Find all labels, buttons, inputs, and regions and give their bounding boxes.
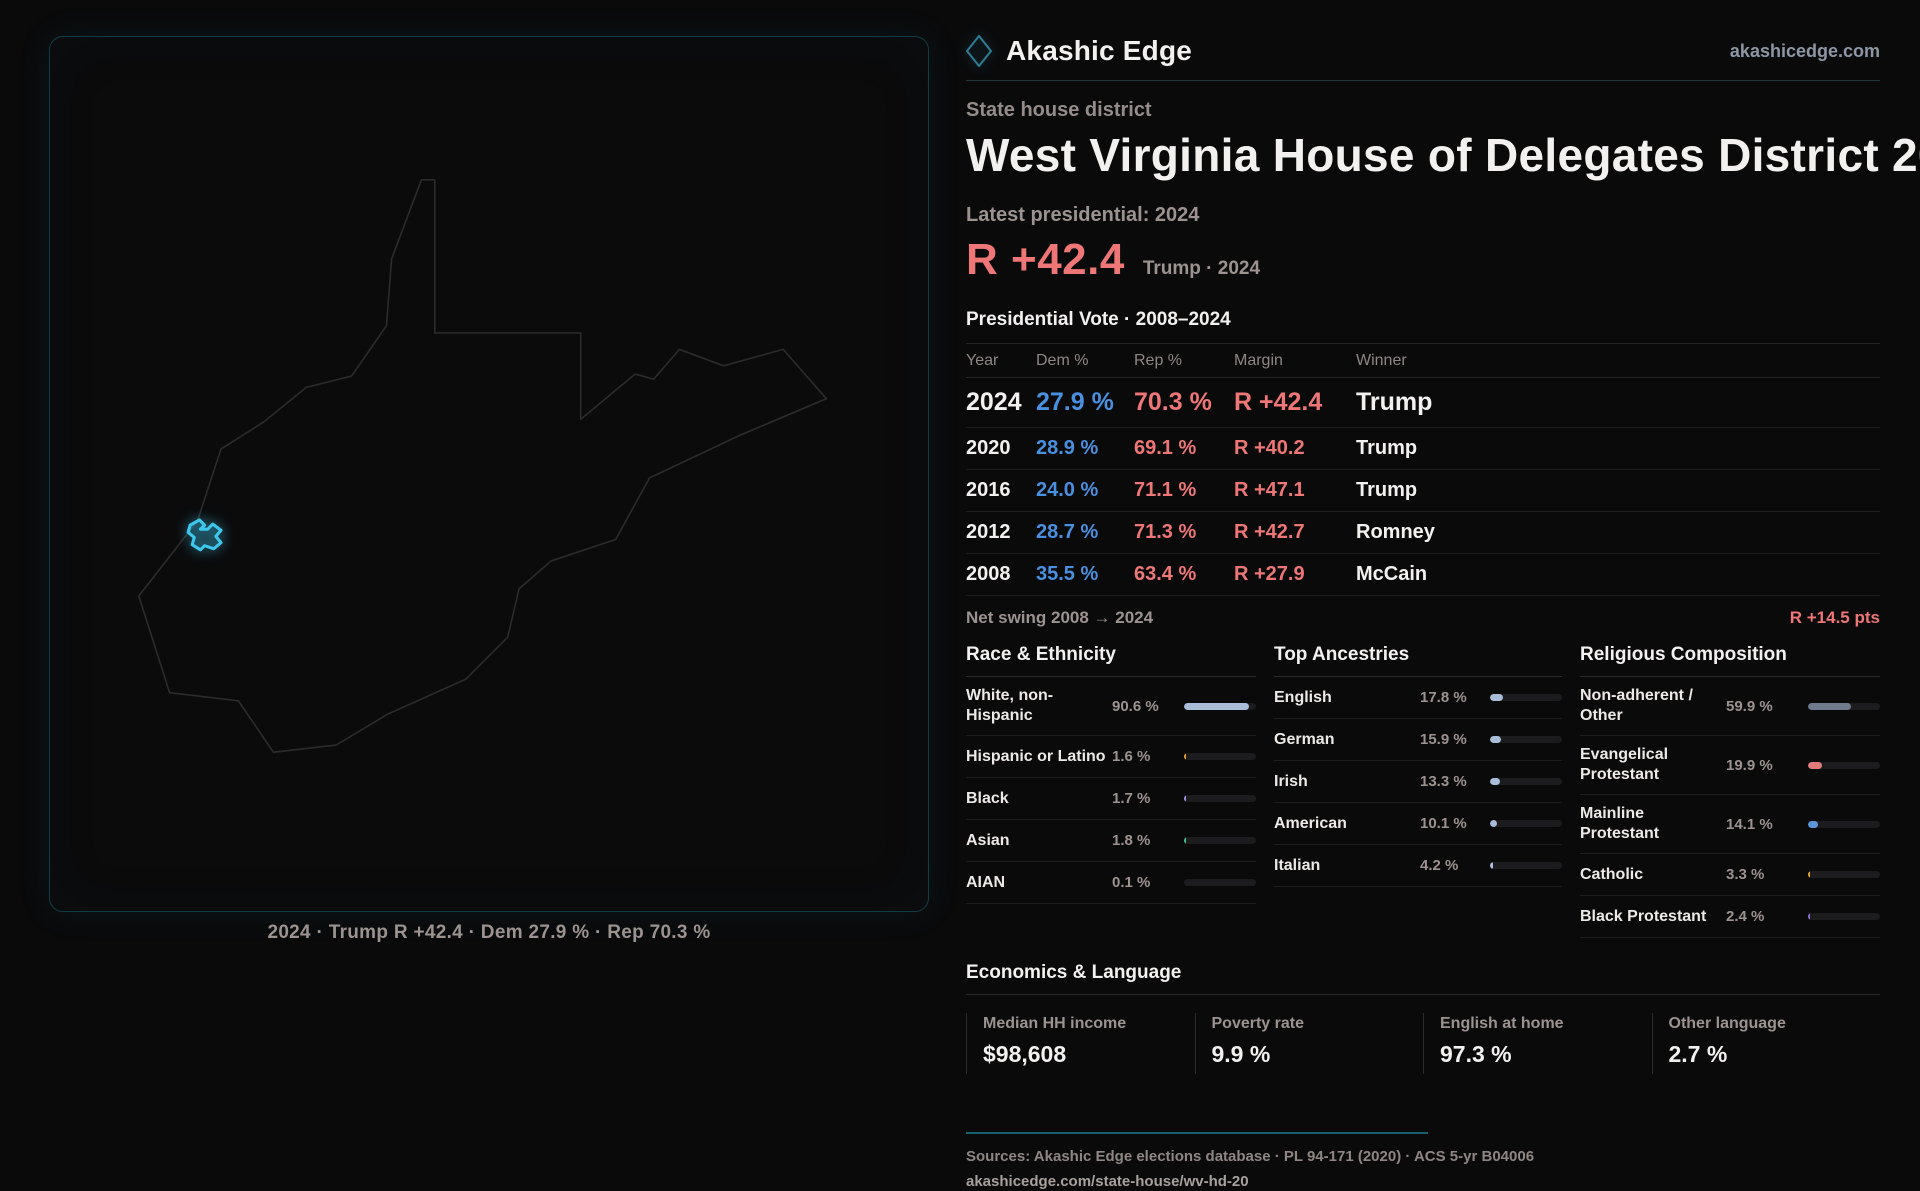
- demographic-value: 59.9 %: [1726, 698, 1808, 715]
- demographic-value: 1.8 %: [1112, 832, 1184, 849]
- district-type-label: State house district: [966, 99, 1880, 122]
- stat-cell: English at home 97.3 %: [1423, 1013, 1652, 1074]
- net-swing-row: Net swing 2008 → 2024 R +14.5 pts: [966, 608, 1880, 628]
- religion-rows: Non-adherent / Other 59.9 % Evangelical …: [1580, 677, 1880, 938]
- religion-title: Religious Composition: [1580, 644, 1880, 677]
- race-ethnicity-rows: White, non-Hispanic 90.6 % Hispanic or L…: [966, 677, 1256, 904]
- stat-label: Poverty rate: [1212, 1015, 1424, 1033]
- demographic-row: Irish 13.3 %: [1274, 761, 1562, 803]
- race-ethnicity-column: Race & Ethnicity White, non-Hispanic 90.…: [966, 644, 1256, 938]
- demographic-label: Black: [966, 789, 1112, 809]
- vote-table-row: 2016 24.0 % 71.1 % R +47.1 Trump: [966, 470, 1880, 512]
- bar-track: [1490, 778, 1562, 785]
- bar-track: [1184, 837, 1256, 844]
- presidential-vote-table: Year Dem % Rep % Margin Winner 2024 27.9…: [966, 343, 1880, 596]
- latest-presidential-label: Latest presidential: 2024: [966, 204, 1880, 227]
- row-dem-pct: 28.7 %: [1036, 521, 1134, 544]
- row-year: 2016: [966, 479, 1036, 502]
- demographic-label: Hispanic or Latino: [966, 747, 1112, 767]
- bar-fill: [1490, 778, 1500, 785]
- bar-track: [1490, 694, 1562, 701]
- demographic-value: 14.1 %: [1726, 816, 1808, 833]
- stat-cell: Median HH income $98,608: [966, 1013, 1195, 1074]
- demographic-value: 90.6 %: [1112, 698, 1184, 715]
- header: Akashic Edge akashicedge.com: [966, 30, 1880, 72]
- demographic-row: Non-adherent / Other 59.9 %: [1580, 677, 1880, 736]
- bar-track: [1808, 871, 1880, 878]
- economics-title: Economics & Language: [966, 962, 1880, 995]
- row-rep-pct: 63.4 %: [1134, 563, 1234, 586]
- district-map-panel: [49, 36, 929, 912]
- row-rep-pct: 70.3 %: [1134, 388, 1234, 417]
- demographic-value: 10.1 %: [1420, 815, 1490, 832]
- demographic-value: 2.4 %: [1726, 908, 1808, 925]
- demographic-label: American: [1274, 814, 1420, 834]
- state-outline-shape: [139, 180, 827, 752]
- race-ethnicity-title: Race & Ethnicity: [966, 644, 1256, 677]
- row-margin: R +40.2: [1234, 437, 1356, 460]
- row-year: 2020: [966, 437, 1036, 460]
- map-caption: 2024 · Trump R +42.4 · Dem 27.9 % · Rep …: [49, 922, 929, 944]
- stat-value: $98,608: [983, 1041, 1195, 1068]
- row-year: 2012: [966, 521, 1036, 544]
- vote-table-row: 2012 28.7 % 71.3 % R +42.7 Romney: [966, 512, 1880, 554]
- net-swing-label: Net swing 2008 → 2024: [966, 608, 1153, 628]
- bar-fill: [1808, 821, 1818, 828]
- demographic-label: Non-adherent / Other: [1580, 686, 1726, 726]
- demographic-value: 1.6 %: [1112, 748, 1184, 765]
- demographic-row: Catholic 3.3 %: [1580, 854, 1880, 896]
- row-winner: Trump: [1356, 479, 1880, 502]
- bar-track: [1184, 753, 1256, 760]
- demographic-label: Evangelical Protestant: [1580, 745, 1726, 785]
- demographic-row: Asian 1.8 %: [966, 820, 1256, 862]
- ancestries-title: Top Ancestries: [1274, 644, 1562, 677]
- stat-value: 97.3 %: [1440, 1041, 1652, 1068]
- bar-fill: [1490, 736, 1501, 743]
- demographic-row: Hispanic or Latino 1.6 %: [966, 736, 1256, 778]
- demographic-label: German: [1274, 730, 1420, 750]
- stat-label: Median HH income: [983, 1015, 1195, 1033]
- bar-track: [1808, 821, 1880, 828]
- bar-track: [1808, 762, 1880, 769]
- permalink-link[interactable]: akashicedge.com/state-house/wv-hd-20: [966, 1173, 1249, 1190]
- headline-margin-value: R +42.4: [966, 235, 1125, 285]
- brand-name: Akashic Edge: [1006, 35, 1192, 67]
- demographic-row: White, non-Hispanic 90.6 %: [966, 677, 1256, 736]
- stat-cell: Poverty rate 9.9 %: [1195, 1013, 1424, 1074]
- bar-fill: [1808, 703, 1851, 710]
- row-winner: McCain: [1356, 563, 1880, 586]
- bar-track: [1808, 913, 1880, 920]
- demographic-label: Catholic: [1580, 865, 1726, 885]
- highlighted-district-shape[interactable]: [188, 520, 221, 550]
- bar-fill: [1808, 762, 1822, 769]
- col-margin: Margin: [1234, 352, 1356, 370]
- demographic-label: Irish: [1274, 772, 1420, 792]
- demographic-label: Black Protestant: [1580, 907, 1726, 927]
- row-margin: R +42.7: [1234, 521, 1356, 544]
- demographic-row: Mainline Protestant 14.1 %: [1580, 795, 1880, 854]
- bar-fill: [1184, 837, 1186, 844]
- vote-table-row: 2008 35.5 % 63.4 % R +27.9 McCain: [966, 554, 1880, 596]
- row-margin: R +42.4: [1234, 388, 1356, 417]
- vote-table-header: Year Dem % Rep % Margin Winner: [966, 344, 1880, 378]
- detail-panel: Akashic Edge akashicedge.com State house…: [966, 30, 1880, 1191]
- demographic-value: 4.2 %: [1420, 857, 1490, 874]
- header-divider: [966, 80, 1880, 81]
- demographic-row: English 17.8 %: [1274, 677, 1562, 719]
- demographic-label: Italian: [1274, 856, 1420, 876]
- row-year: 2024: [966, 388, 1036, 417]
- west-virginia-map: [110, 157, 850, 774]
- bar-track: [1808, 703, 1880, 710]
- headline-margin-row: R +42.4 Trump · 2024: [966, 235, 1880, 285]
- stat-value: 2.7 %: [1669, 1041, 1881, 1068]
- site-domain-link[interactable]: akashicedge.com: [1730, 41, 1880, 62]
- bar-track: [1184, 703, 1256, 710]
- footer-divider: [966, 1132, 1428, 1134]
- demographic-label: English: [1274, 688, 1420, 708]
- bar-track: [1490, 736, 1562, 743]
- row-dem-pct: 27.9 %: [1036, 388, 1134, 417]
- row-dem-pct: 24.0 %: [1036, 479, 1134, 502]
- bar-track: [1184, 879, 1256, 886]
- stat-value: 9.9 %: [1212, 1041, 1424, 1068]
- col-winner: Winner: [1356, 352, 1880, 370]
- demographic-row: German 15.9 %: [1274, 719, 1562, 761]
- demographic-row: AIAN 0.1 %: [966, 862, 1256, 904]
- demographics-section: Race & Ethnicity White, non-Hispanic 90.…: [966, 644, 1880, 938]
- row-dem-pct: 35.5 %: [1036, 563, 1134, 586]
- col-year: Year: [966, 352, 1036, 370]
- stat-cell: Other language 2.7 %: [1652, 1013, 1881, 1074]
- sources-text: Sources: Akashic Edge elections database…: [966, 1148, 1880, 1165]
- religion-column: Religious Composition Non-adherent / Oth…: [1580, 644, 1880, 938]
- col-rep: Rep %: [1134, 352, 1234, 370]
- demographic-row: Black Protestant 2.4 %: [1580, 896, 1880, 938]
- demographic-label: Asian: [966, 831, 1112, 851]
- stat-label: Other language: [1669, 1015, 1881, 1033]
- row-rep-pct: 71.1 %: [1134, 479, 1234, 502]
- demographic-value: 13.3 %: [1420, 773, 1490, 790]
- ancestries-rows: English 17.8 % German 15.9 % Irish 13.3 …: [1274, 677, 1562, 887]
- vote-table-row: 2020 28.9 % 69.1 % R +40.2 Trump: [966, 428, 1880, 470]
- row-margin: R +47.1: [1234, 479, 1356, 502]
- demographic-value: 1.7 %: [1112, 790, 1184, 807]
- demographic-row: Evangelical Protestant 19.9 %: [1580, 736, 1880, 795]
- row-winner: Trump: [1356, 388, 1880, 417]
- diamond-logo-icon: [966, 35, 992, 67]
- stat-label: English at home: [1440, 1015, 1652, 1033]
- bar-track: [1184, 795, 1256, 802]
- demographic-value: 19.9 %: [1726, 757, 1808, 774]
- bar-fill: [1808, 913, 1810, 920]
- demographic-row: American 10.1 %: [1274, 803, 1562, 845]
- bar-fill: [1490, 694, 1503, 701]
- demographic-row: Black 1.7 %: [966, 778, 1256, 820]
- row-rep-pct: 71.3 %: [1134, 521, 1234, 544]
- vote-table-row: 2024 27.9 % 70.3 % R +42.4 Trump: [966, 378, 1880, 428]
- bar-fill: [1184, 753, 1186, 760]
- net-swing-value: R +14.5 pts: [1790, 608, 1880, 628]
- demographic-value: 3.3 %: [1726, 866, 1808, 883]
- col-dem: Dem %: [1036, 352, 1134, 370]
- bar-fill: [1808, 871, 1810, 878]
- bar-fill: [1490, 820, 1497, 827]
- row-winner: Romney: [1356, 521, 1880, 544]
- demographic-value: 15.9 %: [1420, 731, 1490, 748]
- demographic-value: 17.8 %: [1420, 689, 1490, 706]
- headline-margin-detail: Trump · 2024: [1143, 258, 1260, 280]
- bar-track: [1490, 820, 1562, 827]
- ancestries-column: Top Ancestries English 17.8 % German 15.…: [1274, 644, 1562, 938]
- row-year: 2008: [966, 563, 1036, 586]
- row-dem-pct: 28.9 %: [1036, 437, 1134, 460]
- bar-track: [1490, 862, 1562, 869]
- row-margin: R +27.9: [1234, 563, 1356, 586]
- demographic-label: Mainline Protestant: [1580, 804, 1726, 844]
- demographic-value: 0.1 %: [1112, 874, 1184, 891]
- bar-fill: [1490, 862, 1493, 869]
- demographic-row: Italian 4.2 %: [1274, 845, 1562, 887]
- page-title: West Virginia House of Delegates Distric…: [966, 128, 1920, 182]
- vote-table-body: 2024 27.9 % 70.3 % R +42.4 Trump 2020 28…: [966, 378, 1880, 596]
- bar-fill: [1184, 703, 1249, 710]
- vote-table-title: Presidential Vote · 2008–2024: [966, 309, 1880, 331]
- row-rep-pct: 69.1 %: [1134, 437, 1234, 460]
- economics-stats: Median HH income $98,608 Poverty rate 9.…: [966, 1013, 1880, 1074]
- bar-fill: [1184, 795, 1186, 802]
- demographic-label: White, non-Hispanic: [966, 686, 1112, 726]
- demographic-label: AIAN: [966, 873, 1112, 893]
- row-winner: Trump: [1356, 437, 1880, 460]
